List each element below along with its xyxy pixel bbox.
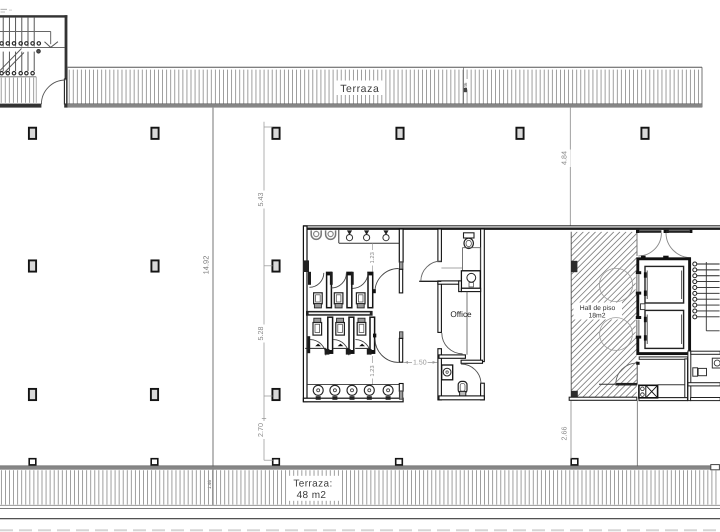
svg-text:Office: Office (450, 310, 472, 319)
svg-text:5.43: 5.43 (256, 193, 265, 207)
svg-text:18m2: 18m2 (588, 313, 605, 320)
svg-text:5.28: 5.28 (256, 327, 265, 341)
svg-text:1.23: 1.23 (369, 252, 376, 263)
svg-text:Hall de piso: Hall de piso (580, 305, 616, 312)
svg-text:1.46: 1.46 (207, 480, 212, 489)
svg-text:48 m2: 48 m2 (297, 490, 327, 501)
svg-text:14.92: 14.92 (201, 256, 210, 275)
svg-text:4.84: 4.84 (560, 151, 569, 165)
svg-text:Terraza:: Terraza: (293, 479, 332, 490)
svg-text:2.66: 2.66 (560, 427, 569, 441)
svg-text:1.50: 1.50 (413, 360, 427, 367)
svg-text:Terraza: Terraza (340, 83, 379, 95)
svg-text:2.70: 2.70 (256, 423, 265, 437)
svg-text:1.23: 1.23 (369, 365, 376, 376)
